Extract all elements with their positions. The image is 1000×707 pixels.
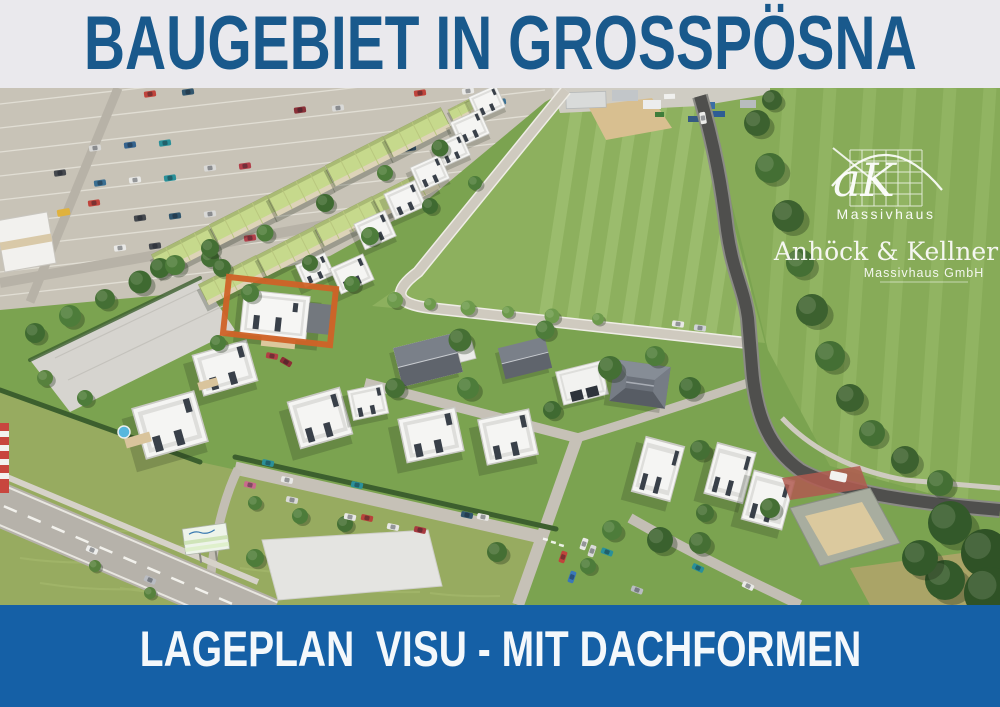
logo-company-sub: Massivhaus GmbH [864,266,985,280]
commercial-building [0,212,56,272]
header-banner: BAUGEBIET IN GROSSPÖSNA [0,0,1000,88]
pool [118,426,130,438]
advertising-pillar [0,423,9,493]
logo-initials: aK [833,153,897,207]
footer-banner: LAGEPLAN VISU - MIT DACHFORMEN [0,605,1000,707]
page-title: BAUGEBIET IN GROSSPÖSNA [84,6,917,82]
flyer: BAUGEBIET IN GROSSPÖSNA [0,0,1000,707]
logo-brand: Massivhaus [837,206,936,222]
logo-company: Anhöck & Kellner [773,237,998,266]
aerial-photo: aK Massivhaus Anhöck & Kellner Massivhau… [0,88,1000,605]
caption-text: LAGEPLAN VISU - MIT DACHFORMEN [139,624,860,688]
